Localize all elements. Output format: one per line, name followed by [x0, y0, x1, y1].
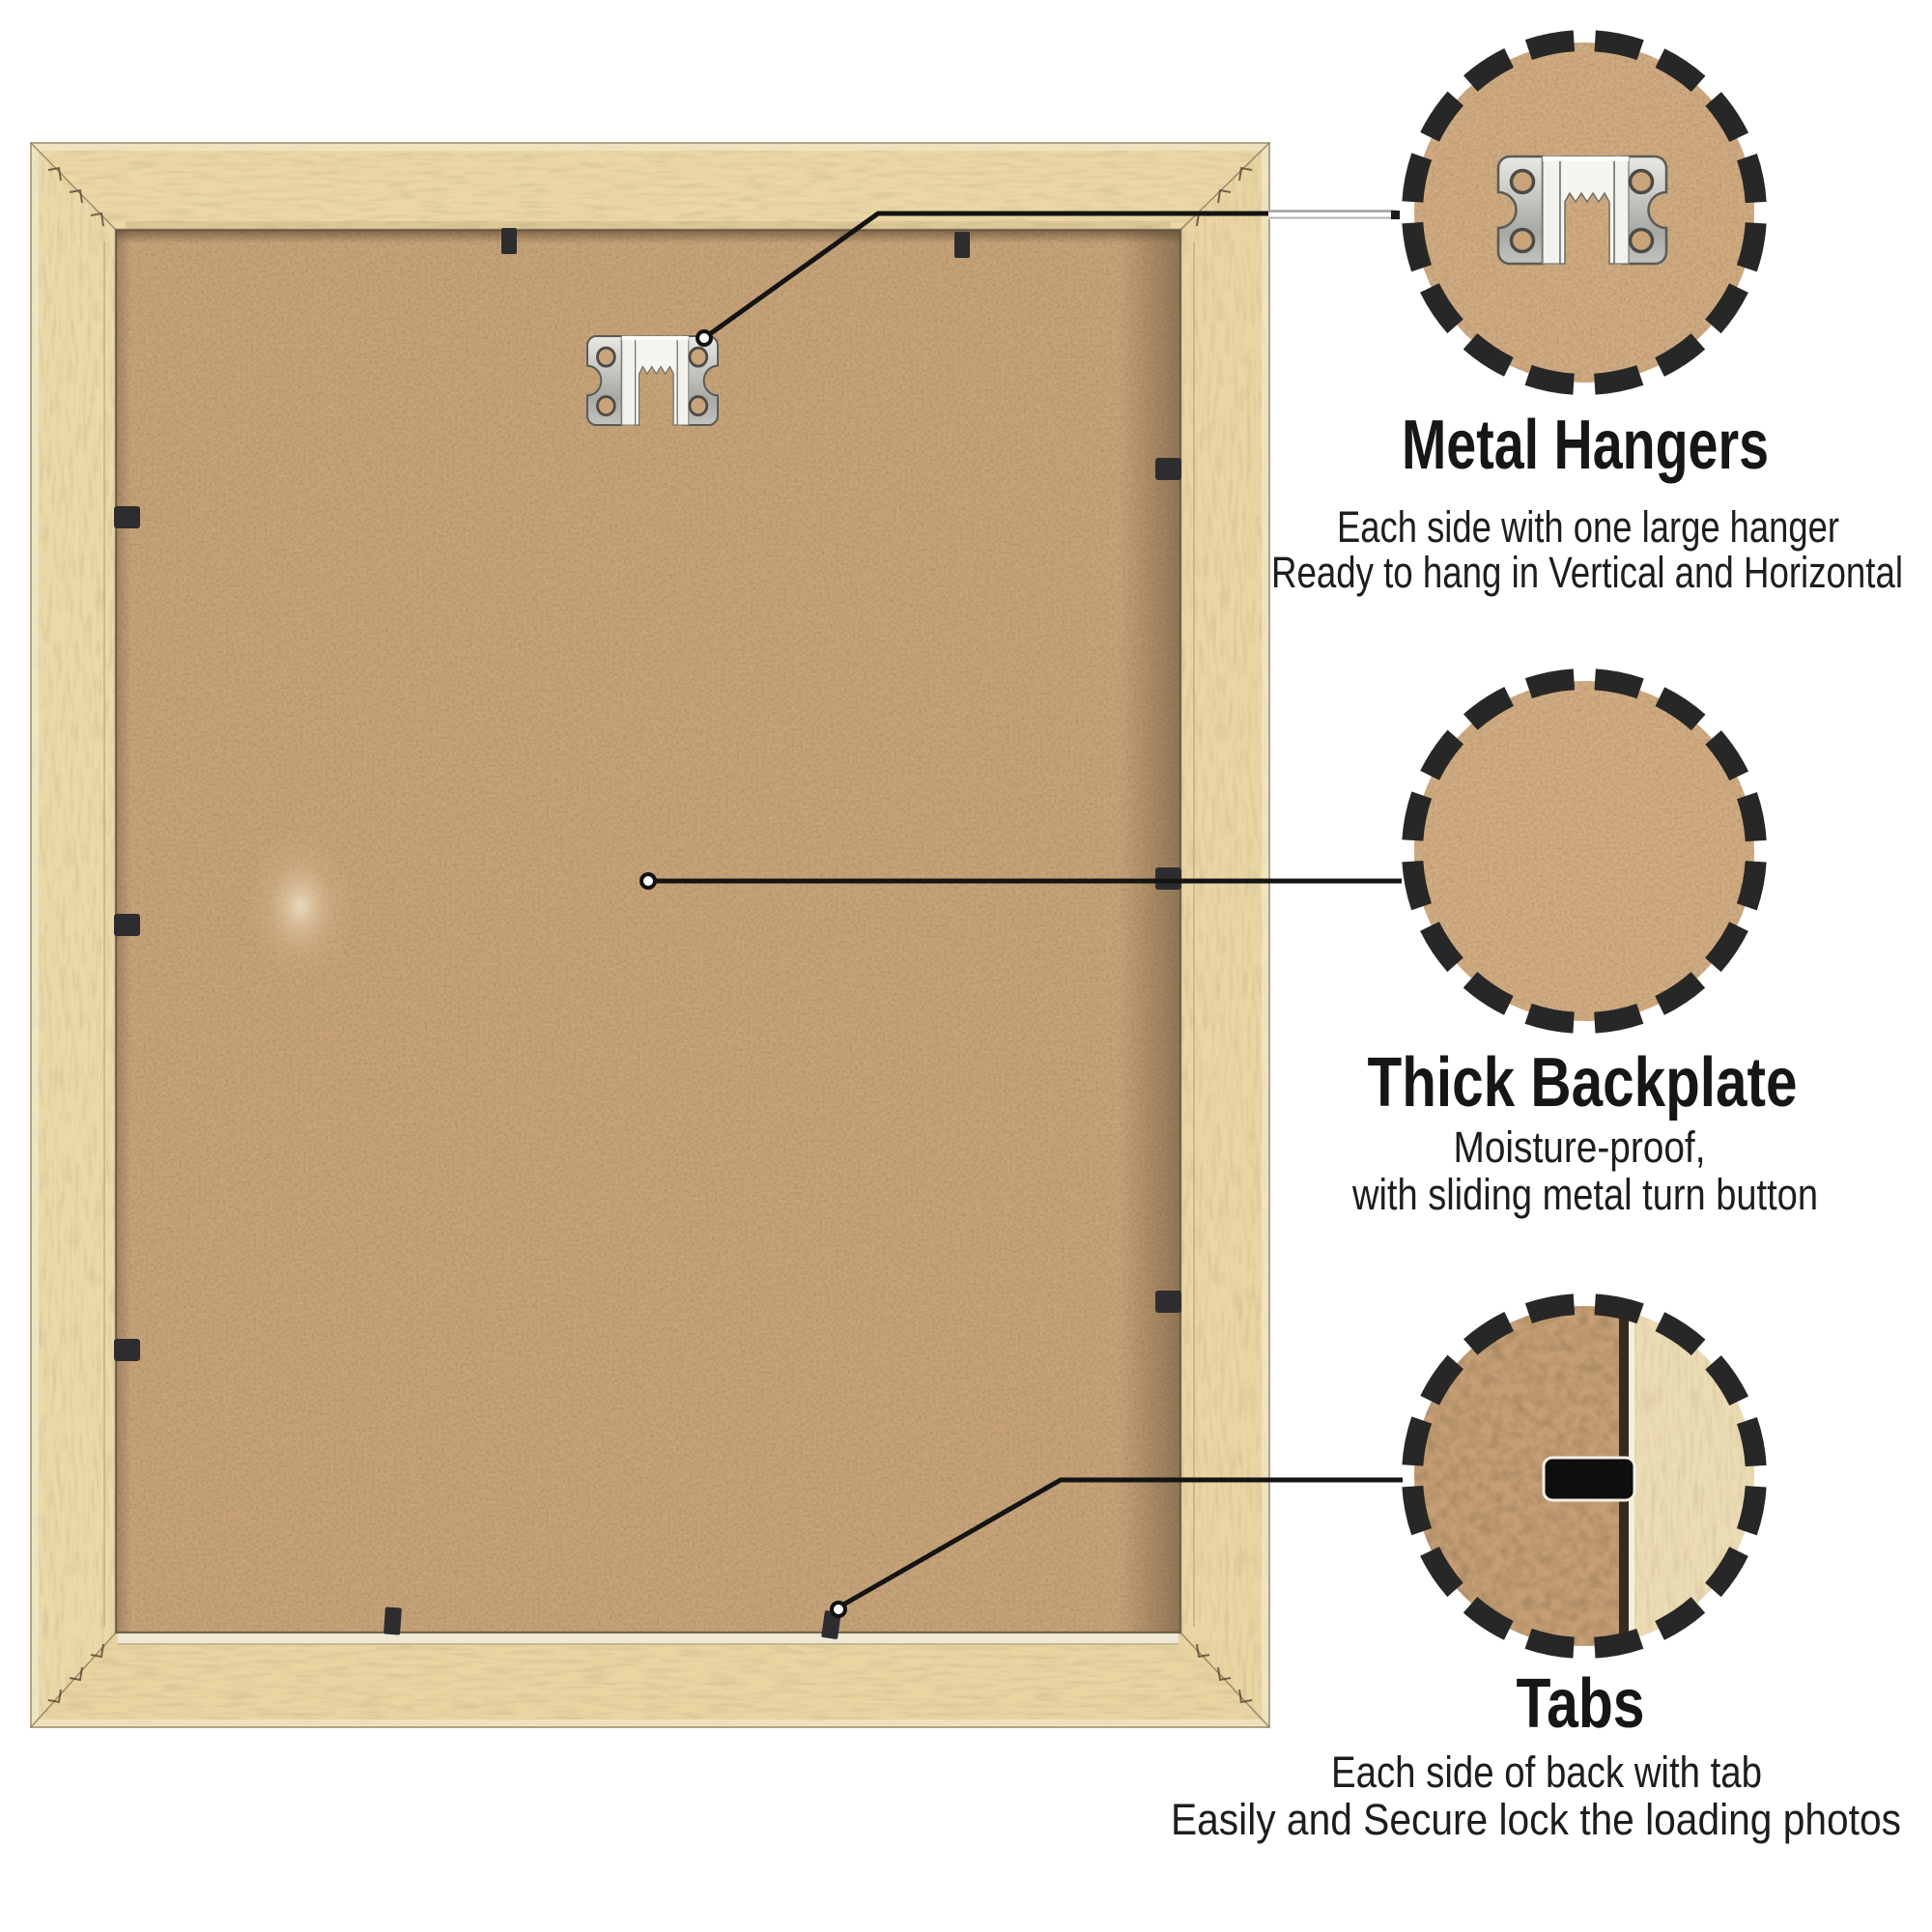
svg-text:Easily and Secure lock the loa: Easily and Secure lock the loading photo… — [1171, 1795, 1901, 1844]
svg-text:Moisture-proof,: Moisture-proof, — [1454, 1122, 1706, 1172]
svg-text:with sliding metal turn button: with sliding metal turn button — [1351, 1170, 1818, 1219]
svg-text:Tabs: Tabs — [1517, 1665, 1645, 1743]
svg-text:Each side of back with tab: Each side of back with tab — [1331, 1747, 1762, 1797]
svg-text:Each side with one large hange: Each side with one large hanger — [1337, 502, 1839, 552]
svg-text:Thick Backplate: Thick Backplate — [1368, 1044, 1798, 1122]
svg-text:Ready to hang in Vertical and: Ready to hang in Vertical and Horizontal — [1271, 548, 1903, 597]
svg-text:Metal Hangers: Metal Hangers — [1402, 407, 1769, 484]
